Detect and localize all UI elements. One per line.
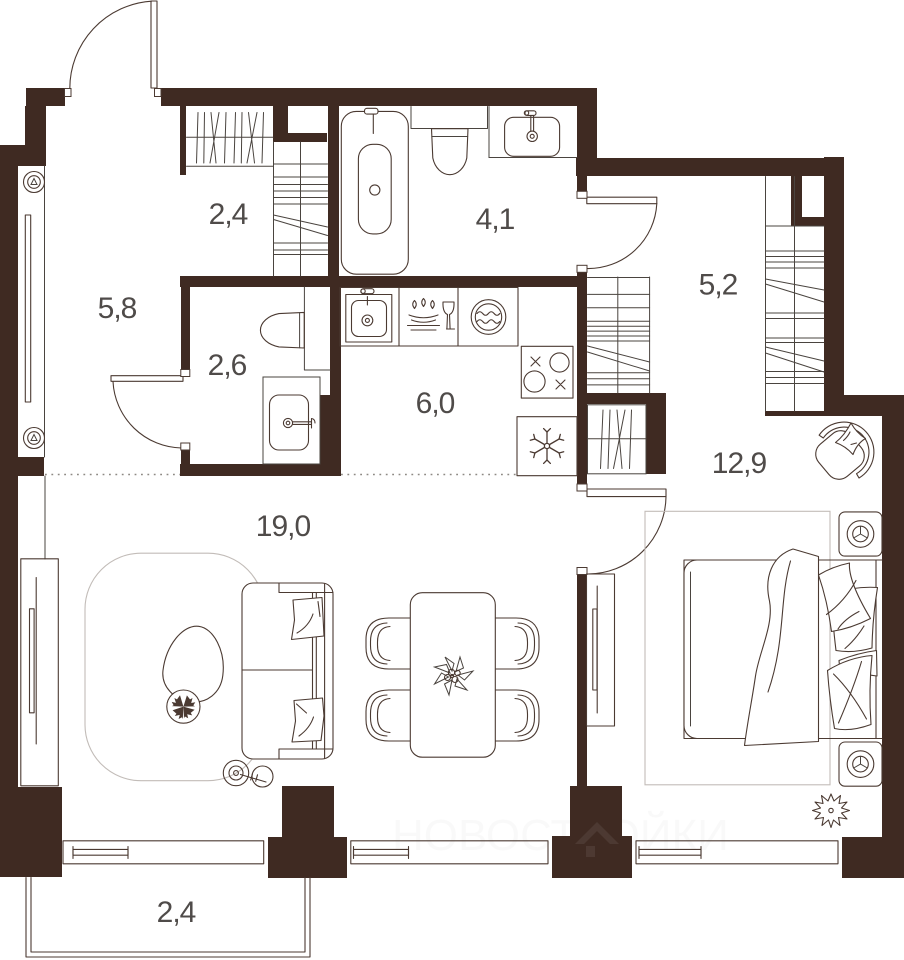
svg-text:5,8: 5,8 (98, 292, 137, 325)
svg-text:6,0: 6,0 (416, 387, 455, 420)
svg-text:2,6: 2,6 (208, 349, 247, 382)
svg-text:2,4: 2,4 (157, 896, 196, 929)
svg-text:4,1: 4,1 (476, 203, 515, 236)
svg-text:5,2: 5,2 (699, 269, 738, 302)
svg-text:12,9: 12,9 (712, 447, 767, 480)
svg-text:19,0: 19,0 (256, 510, 311, 543)
svg-text:НОВОСТРОЙКИ: НОВОСТРОЙКИ (392, 809, 729, 860)
svg-text:2,4: 2,4 (209, 198, 248, 231)
